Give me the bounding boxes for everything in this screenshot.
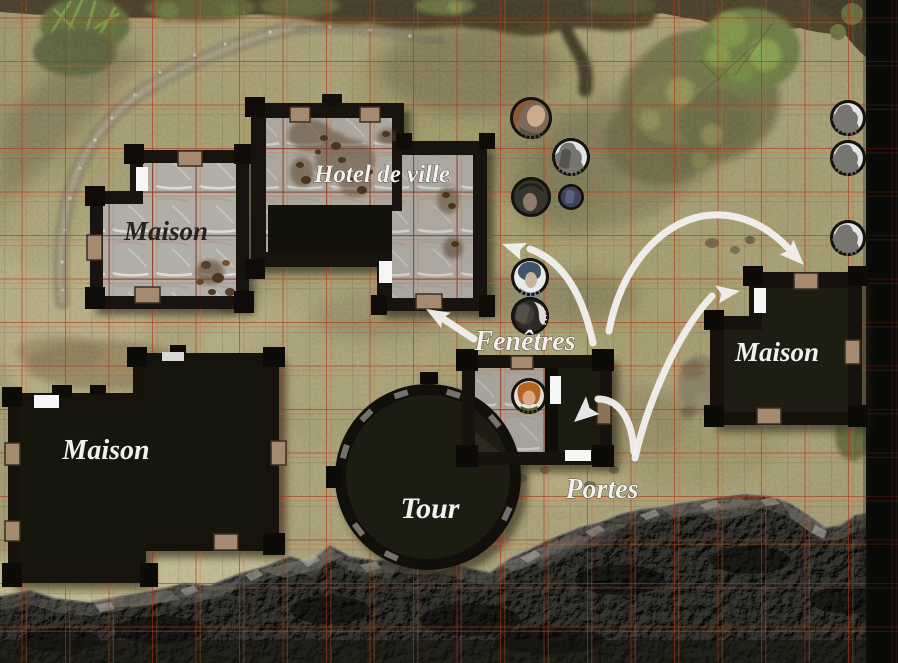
svg-text:Maison: Maison (734, 337, 819, 367)
svg-text:Fenêtres: Fenêtres (473, 326, 575, 357)
svg-text:Portes: Portes (564, 474, 638, 505)
svg-text:Hotel de ville: Hotel de ville (313, 161, 450, 188)
svg-text:Maison: Maison (123, 216, 208, 246)
svg-text:Maison: Maison (61, 435, 149, 466)
svg-text:Tour: Tour (401, 492, 460, 525)
